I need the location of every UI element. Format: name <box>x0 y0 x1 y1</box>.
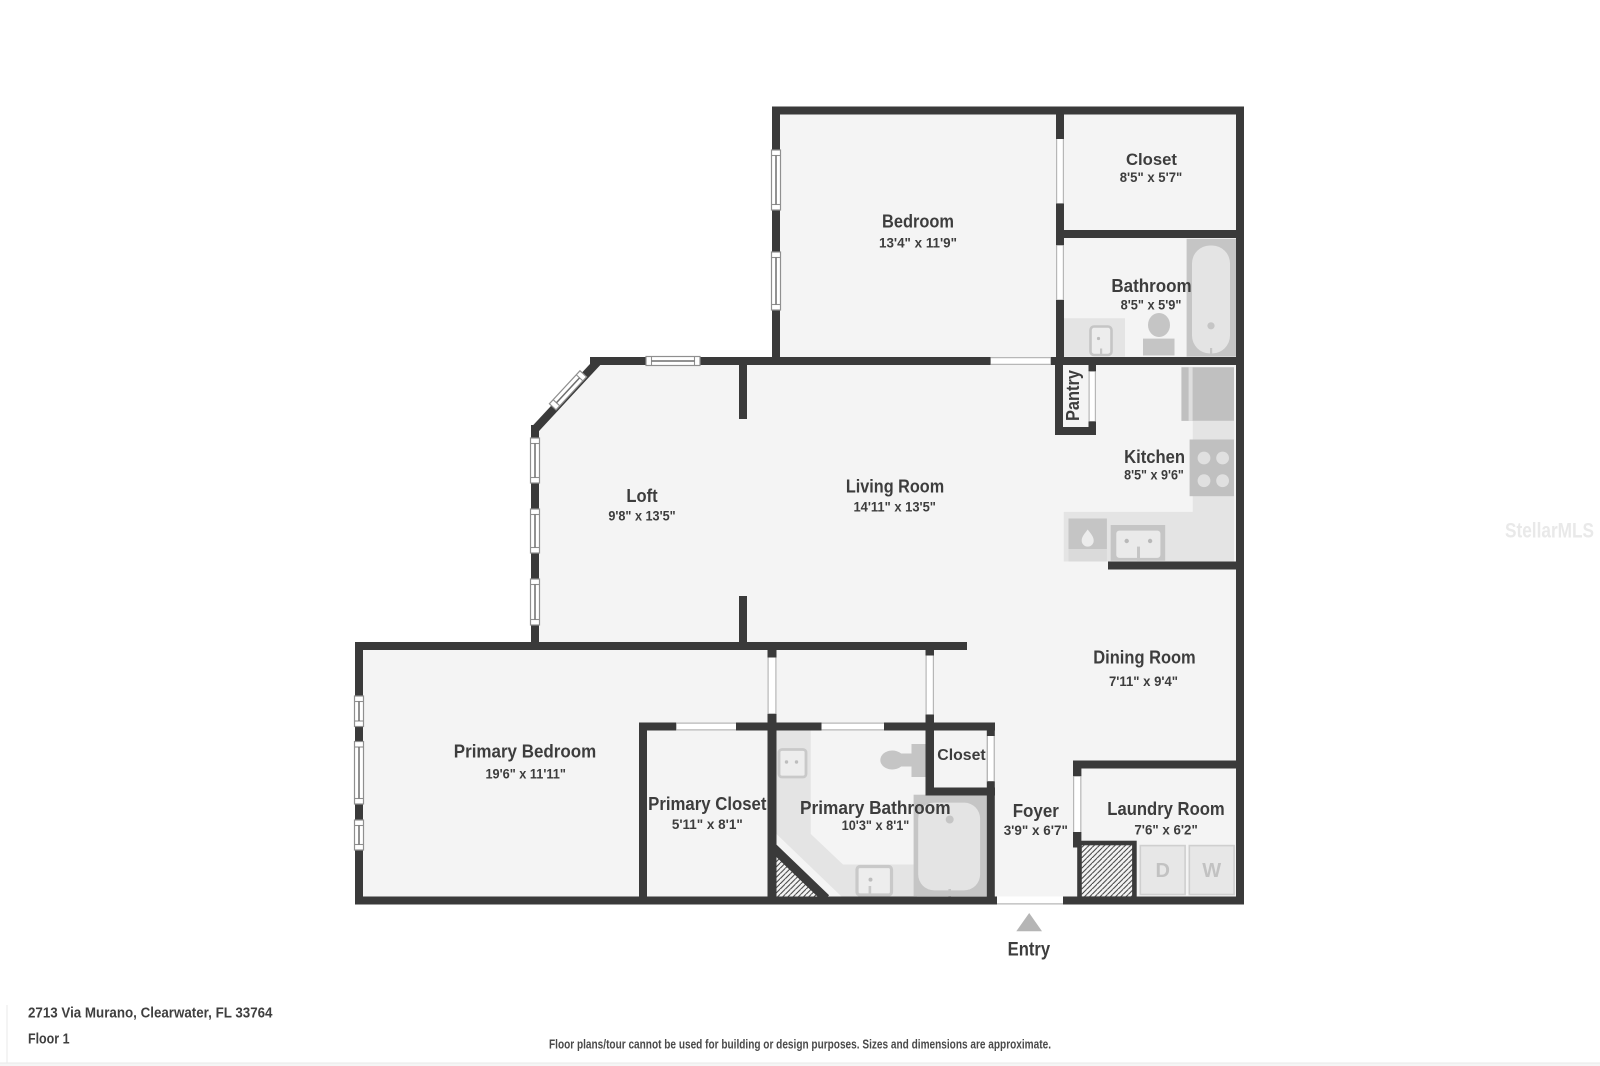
svg-text:Floor plans/tour cannot be use: Floor plans/tour cannot be used for buil… <box>549 1037 1051 1052</box>
svg-text:19'6" x 11'11": 19'6" x 11'11" <box>485 766 566 782</box>
svg-text:D: D <box>1155 860 1169 882</box>
svg-text:3'9" x 6'7": 3'9" x 6'7" <box>1004 822 1068 838</box>
svg-text:Floor 1: Floor 1 <box>28 1032 70 1048</box>
svg-text:Primary Closet: Primary Closet <box>648 794 766 814</box>
svg-text:Loft: Loft <box>626 486 657 506</box>
svg-text:Kitchen: Kitchen <box>1124 447 1185 467</box>
svg-text:13'4" x 11'9": 13'4" x 11'9" <box>879 234 957 250</box>
svg-text:Bedroom: Bedroom <box>882 212 954 232</box>
svg-text:7'11" x 9'4": 7'11" x 9'4" <box>1109 673 1178 689</box>
svg-text:8'5" x 5'9": 8'5" x 5'9" <box>1121 297 1182 312</box>
svg-text:9'8" x 13'5": 9'8" x 13'5" <box>608 508 675 524</box>
svg-text:8'5" x 5'7": 8'5" x 5'7" <box>1120 170 1183 185</box>
svg-text:5'11" x 8'1": 5'11" x 8'1" <box>672 816 743 832</box>
svg-text:Pantry: Pantry <box>1063 370 1083 421</box>
svg-text:W: W <box>1202 860 1221 882</box>
svg-text:Primary Bathroom: Primary Bathroom <box>800 798 951 818</box>
svg-text:Entry: Entry <box>1008 939 1051 960</box>
svg-text:14'11" x 13'5": 14'11" x 13'5" <box>853 499 936 515</box>
svg-text:Living Room: Living Room <box>846 477 944 497</box>
svg-text:StellarMLS: StellarMLS <box>1505 519 1594 543</box>
svg-text:7'6" x 6'2": 7'6" x 6'2" <box>1134 822 1197 838</box>
svg-text:Closet: Closet <box>937 747 986 764</box>
svg-text:10'3" x 8'1": 10'3" x 8'1" <box>842 817 910 833</box>
svg-text:8'5" x 9'6": 8'5" x 9'6" <box>1124 468 1184 483</box>
svg-text:Foyer: Foyer <box>1013 801 1059 821</box>
svg-text:2713 Via Murano, Clearwater, F: 2713 Via Murano, Clearwater, FL 33764 <box>28 1006 273 1022</box>
svg-text:Dining Room: Dining Room <box>1093 647 1195 667</box>
svg-text:Primary Bedroom: Primary Bedroom <box>454 742 596 762</box>
svg-text:Closet: Closet <box>1126 150 1177 169</box>
svg-text:Bathroom: Bathroom <box>1111 276 1191 296</box>
svg-text:Laundry Room: Laundry Room <box>1107 799 1224 819</box>
